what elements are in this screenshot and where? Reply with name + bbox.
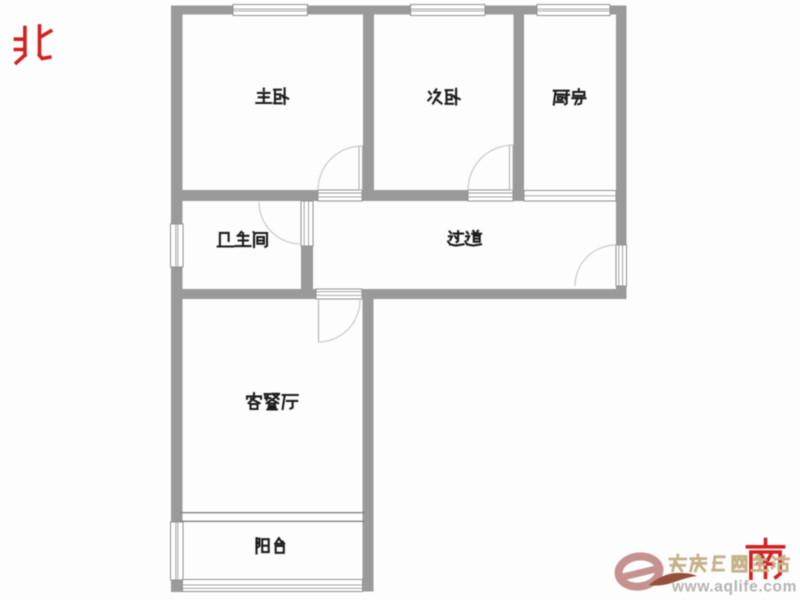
svg-text:www.aqlife.com: www.aqlife.com bbox=[671, 579, 797, 596]
